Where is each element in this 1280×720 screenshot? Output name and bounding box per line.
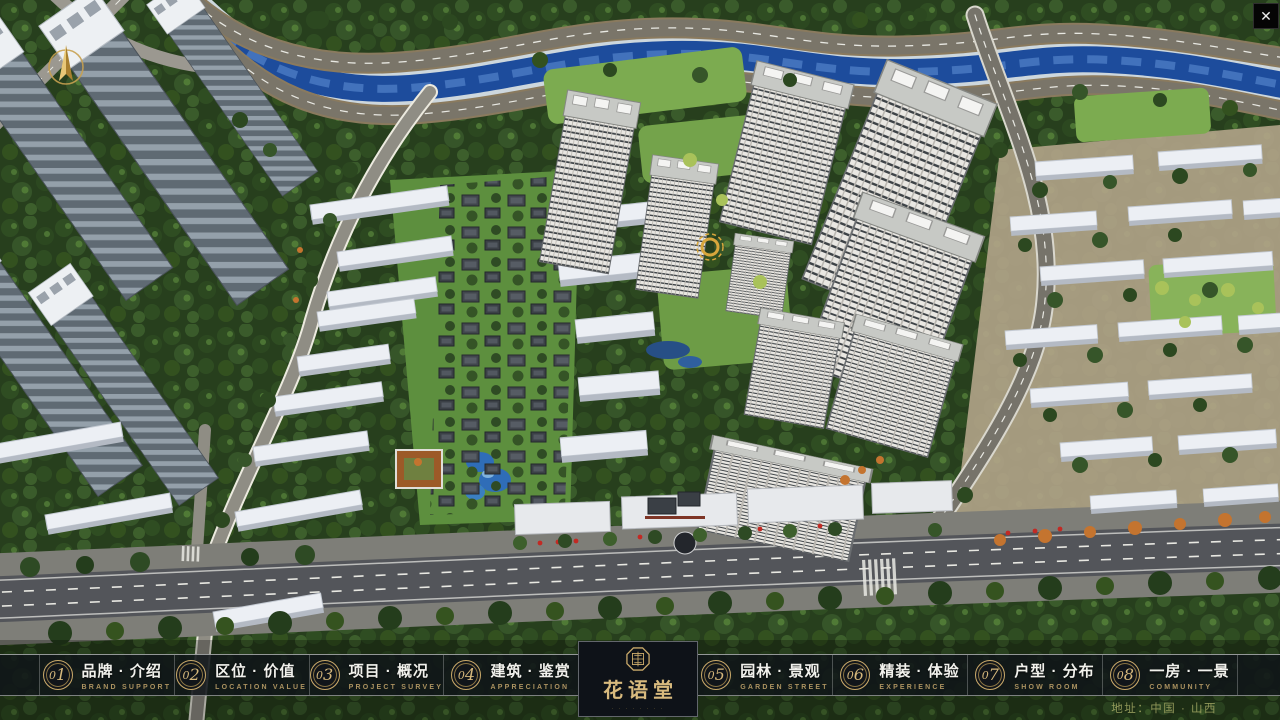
nav-badge-07: 07 [975, 660, 1005, 690]
nav-label-en: APPRECIATION [490, 684, 569, 691]
nav-item-interior-experience[interactable]: 06 精装 · 体验EXPERIENCE [833, 655, 968, 695]
entrance-gate [674, 532, 696, 554]
nav-label-zh: 户型 · 分布 [1014, 660, 1094, 681]
nav-group-left: 01 品牌 · 介绍BRAND SUPPORT 02 区位 · 价值LOCATI… [39, 655, 579, 695]
nav-label-zh: 项目 · 概况 [349, 660, 429, 681]
nav-item-location-value[interactable]: 02 区位 · 价值LOCATION VALUE [175, 655, 310, 695]
project-address: 地址：中国 · 山西 [1111, 700, 1217, 716]
nav-item-room-view[interactable]: 08 一房 · 一景COMMUNITY [1103, 655, 1238, 695]
nav-label-en: COMMUNITY [1149, 684, 1212, 691]
nav-badge-08: 08 [1110, 660, 1140, 690]
seal-icon [626, 647, 650, 671]
nav-label-zh: 区位 · 价值 [215, 660, 295, 681]
nav-badge-03: 03 [310, 660, 340, 690]
nav-label-en: SHOW ROOM [1014, 684, 1079, 691]
project-title: 花语堂 [598, 674, 678, 703]
aerial-render [0, 0, 1280, 720]
nav-label-zh: 园林 · 景观 [740, 660, 820, 681]
nav-item-project-survey[interactable]: 03 项目 · 概况PROJECT SURVEY [310, 655, 445, 695]
nav-label-en: BRAND SUPPORT [82, 684, 172, 691]
close-button[interactable]: ✕ [1253, 3, 1279, 29]
project-logo-panel[interactable]: 花语堂 · · · · · · · · [578, 641, 698, 717]
nav-label-en: EXPERIENCE [879, 684, 946, 691]
nav-item-floorplans[interactable]: 07 户型 · 分布SHOW ROOM [968, 655, 1103, 695]
nav-badge-06: 06 [840, 660, 870, 690]
nav-item-brand-intro[interactable]: 01 品牌 · 介绍BRAND SUPPORT [40, 655, 175, 695]
nav-label-zh: 精装 · 体验 [879, 660, 959, 681]
nav-badge-02: 02 [176, 660, 206, 690]
nav-label-en: LOCATION VALUE [215, 684, 307, 691]
map-viewport[interactable]: ✕ 01 品牌 · 介绍BRAND SUPPORT 02 区位 · 价值LOCA… [0, 0, 1280, 720]
nav-badge-04: 04 [451, 660, 481, 690]
project-caption: · · · · · · · · [611, 706, 664, 712]
nav-group-right: 05 园林 · 景观GARDEN STREET 06 精装 · 体验EXPERI… [698, 655, 1238, 695]
nav-badge-05: 05 [701, 660, 731, 690]
nav-label-zh: 建筑 · 鉴赏 [490, 660, 570, 681]
nav-badge-01: 01 [43, 660, 73, 690]
nav-label-zh: 品牌 · 介绍 [82, 660, 162, 681]
nav-label-zh: 一房 · 一景 [1149, 660, 1229, 681]
nav-label-en: PROJECT SURVEY [349, 684, 443, 691]
nav-label-en: GARDEN STREET [740, 684, 829, 691]
nav-item-garden-landscape[interactable]: 05 园林 · 景观GARDEN STREET [698, 655, 833, 695]
nav-item-architecture[interactable]: 04 建筑 · 鉴赏APPRECIATION [444, 655, 579, 695]
